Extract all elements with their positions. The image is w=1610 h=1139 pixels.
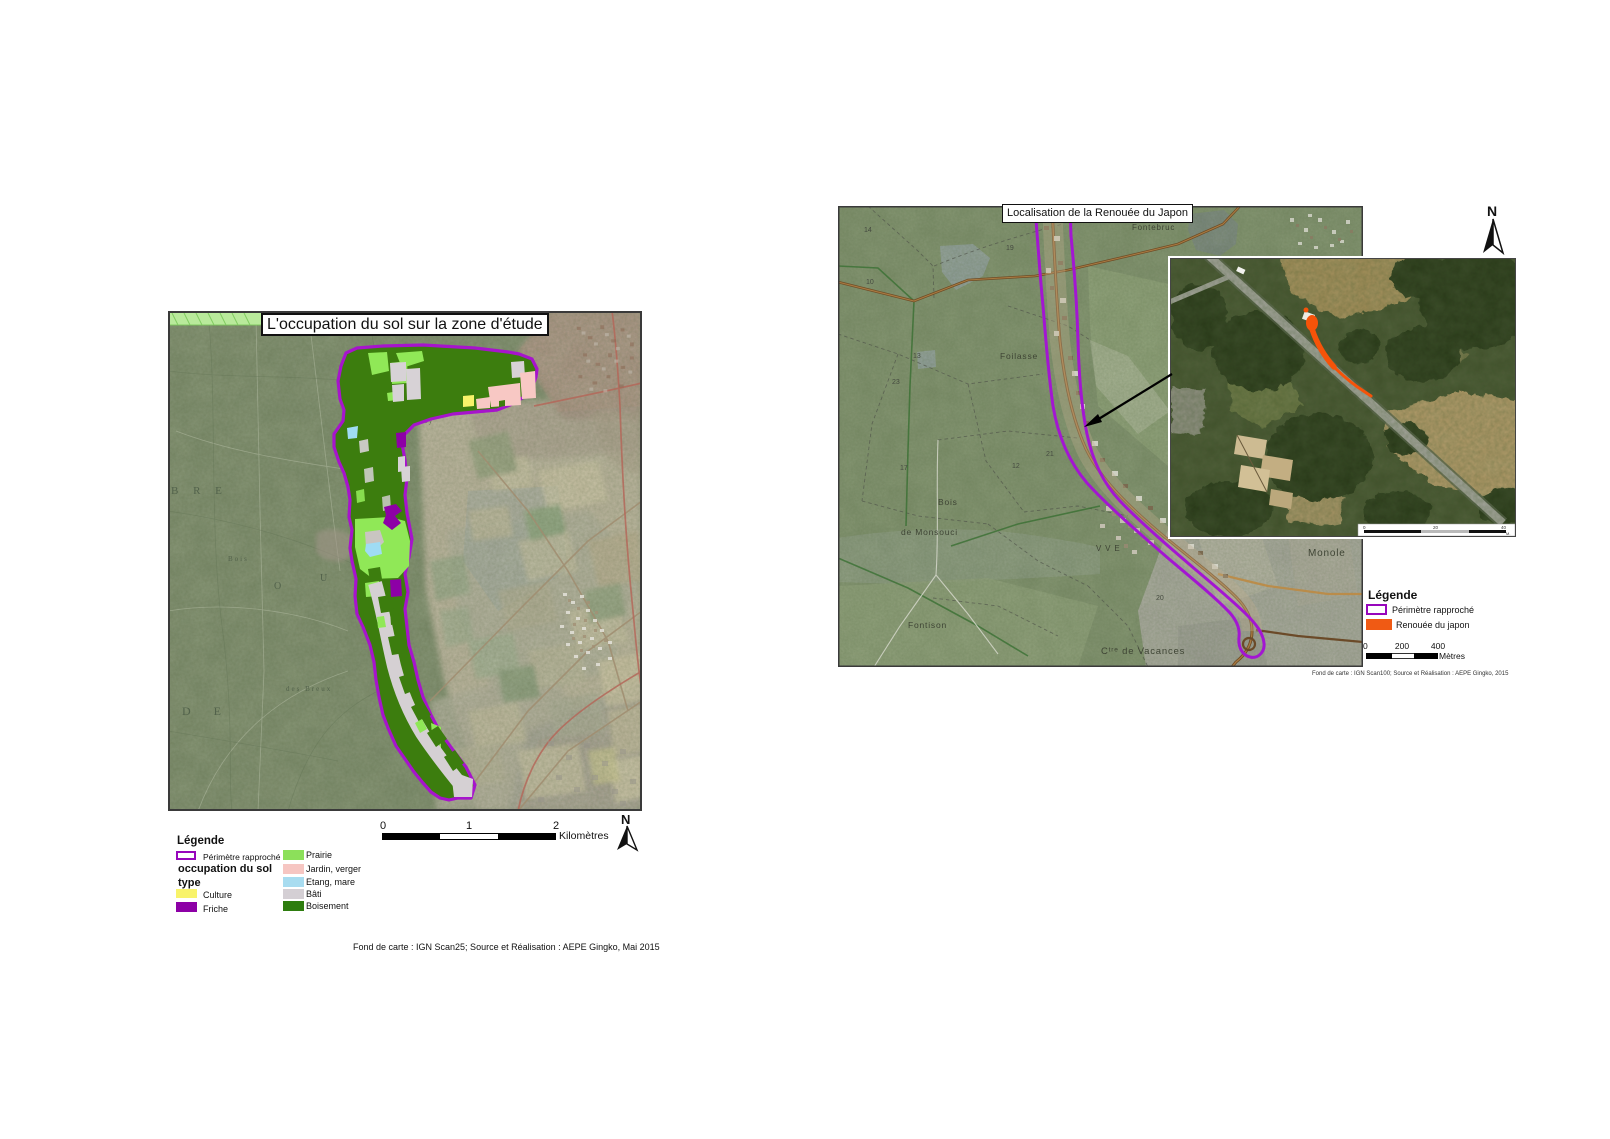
svg-text:M.: M. [1506, 531, 1510, 536]
svg-text:12: 12 [1012, 463, 1020, 470]
svg-text:Bois: Bois [938, 497, 958, 507]
svg-text:Bois: Bois [228, 555, 249, 563]
svg-text:B R E: B R E [171, 485, 228, 497]
svg-text:U: U [320, 573, 333, 584]
svg-text:10: 10 [866, 279, 874, 286]
svg-text:Fontebruc: Fontebruc [1132, 223, 1175, 232]
svg-text:O: O [274, 581, 287, 592]
svg-text:N: N [621, 812, 630, 827]
svg-text:40: 40 [1501, 525, 1507, 530]
svg-text:14: 14 [864, 227, 872, 234]
svg-text:20: 20 [1433, 525, 1439, 530]
svg-text:23: 23 [892, 379, 900, 386]
svg-text:Monole: Monole [1308, 548, 1346, 559]
svg-text:Foilasse: Foilasse [1000, 351, 1038, 361]
svg-text:N: N [1487, 203, 1497, 219]
svg-text:D E: D E [182, 704, 231, 718]
svg-text:19: 19 [1006, 245, 1014, 252]
svg-text:des Breux: des Breux [286, 685, 332, 693]
svg-text:17: 17 [900, 465, 908, 472]
svg-text:13: 13 [913, 353, 921, 360]
svg-text:20: 20 [1156, 595, 1164, 602]
svg-text:21: 21 [1046, 451, 1054, 458]
svg-text:Fontison: Fontison [908, 620, 947, 630]
svg-text:V V E: V V E [1096, 544, 1120, 553]
svg-text:de Monsouci: de Monsouci [901, 527, 958, 537]
